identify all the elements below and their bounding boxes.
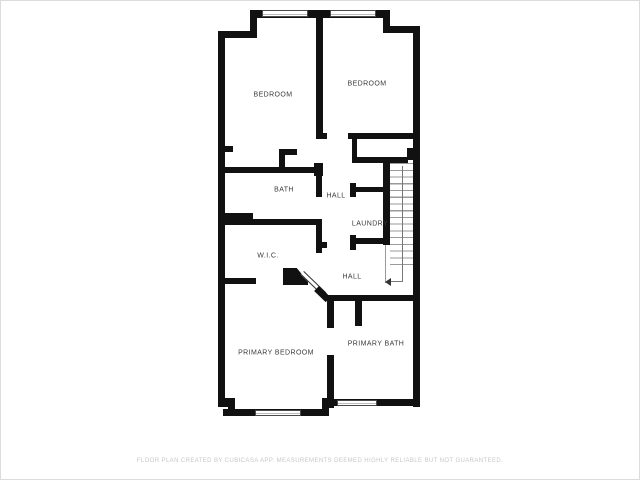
window <box>330 10 376 17</box>
wall <box>222 31 257 38</box>
wall <box>413 26 420 407</box>
window <box>255 410 301 416</box>
room-label-bedroom-right: BEDROOM <box>348 81 387 88</box>
floor-plan: BEDROOM BEDROOM BATH HALL LAUNDRY W.I.C.… <box>0 0 640 480</box>
stairs-walk-line <box>402 166 403 282</box>
room-label-laundry: LAUNDRY <box>352 221 388 228</box>
window <box>262 10 308 17</box>
room-label-wic: W.I.C. <box>257 253 278 260</box>
wall <box>316 133 327 139</box>
disclaimer-text: FLOOR PLAN CREATED BY CUBICASA APP. MEAS… <box>0 458 640 464</box>
wall <box>327 355 334 408</box>
built-in-block <box>223 213 253 225</box>
stairs-walk-line <box>391 281 403 282</box>
room-label-bath: BATH <box>274 187 294 194</box>
wall <box>316 167 322 197</box>
stairs-direction-arrow-icon <box>385 278 391 286</box>
wall <box>218 167 322 173</box>
room-label-bedroom-left: BEDROOM <box>254 92 293 99</box>
wall <box>348 133 413 139</box>
wall <box>327 295 420 301</box>
door-jamb <box>350 235 356 250</box>
room-label-primary-bath: PRIMARY BATH <box>348 341 405 348</box>
wall <box>218 278 256 284</box>
wall <box>222 146 233 152</box>
wall <box>316 16 323 139</box>
wall <box>383 163 390 245</box>
room-label-primary-bedroom: PRIMARY BEDROOM <box>238 350 314 357</box>
window <box>337 400 377 406</box>
door-jamb <box>322 242 327 248</box>
room-label-hall-lower: HALL <box>342 274 361 281</box>
wall <box>355 301 362 326</box>
room-label-hall-upper: HALL <box>326 193 345 200</box>
wall-block <box>407 148 420 160</box>
door-jamb <box>350 183 356 197</box>
